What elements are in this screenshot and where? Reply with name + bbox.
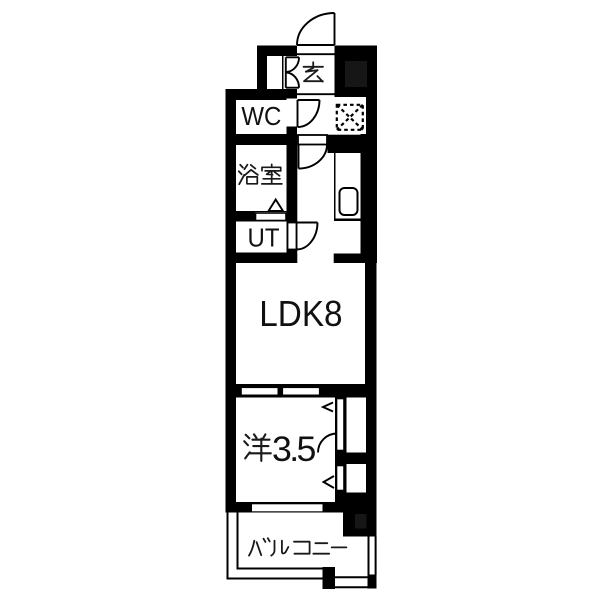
svg-text:3.5: 3.5	[272, 429, 316, 469]
svg-text:LDK8: LDK8	[259, 294, 342, 335]
svg-text:UT: UT	[248, 224, 280, 253]
svg-text:WC: WC	[241, 102, 281, 131]
